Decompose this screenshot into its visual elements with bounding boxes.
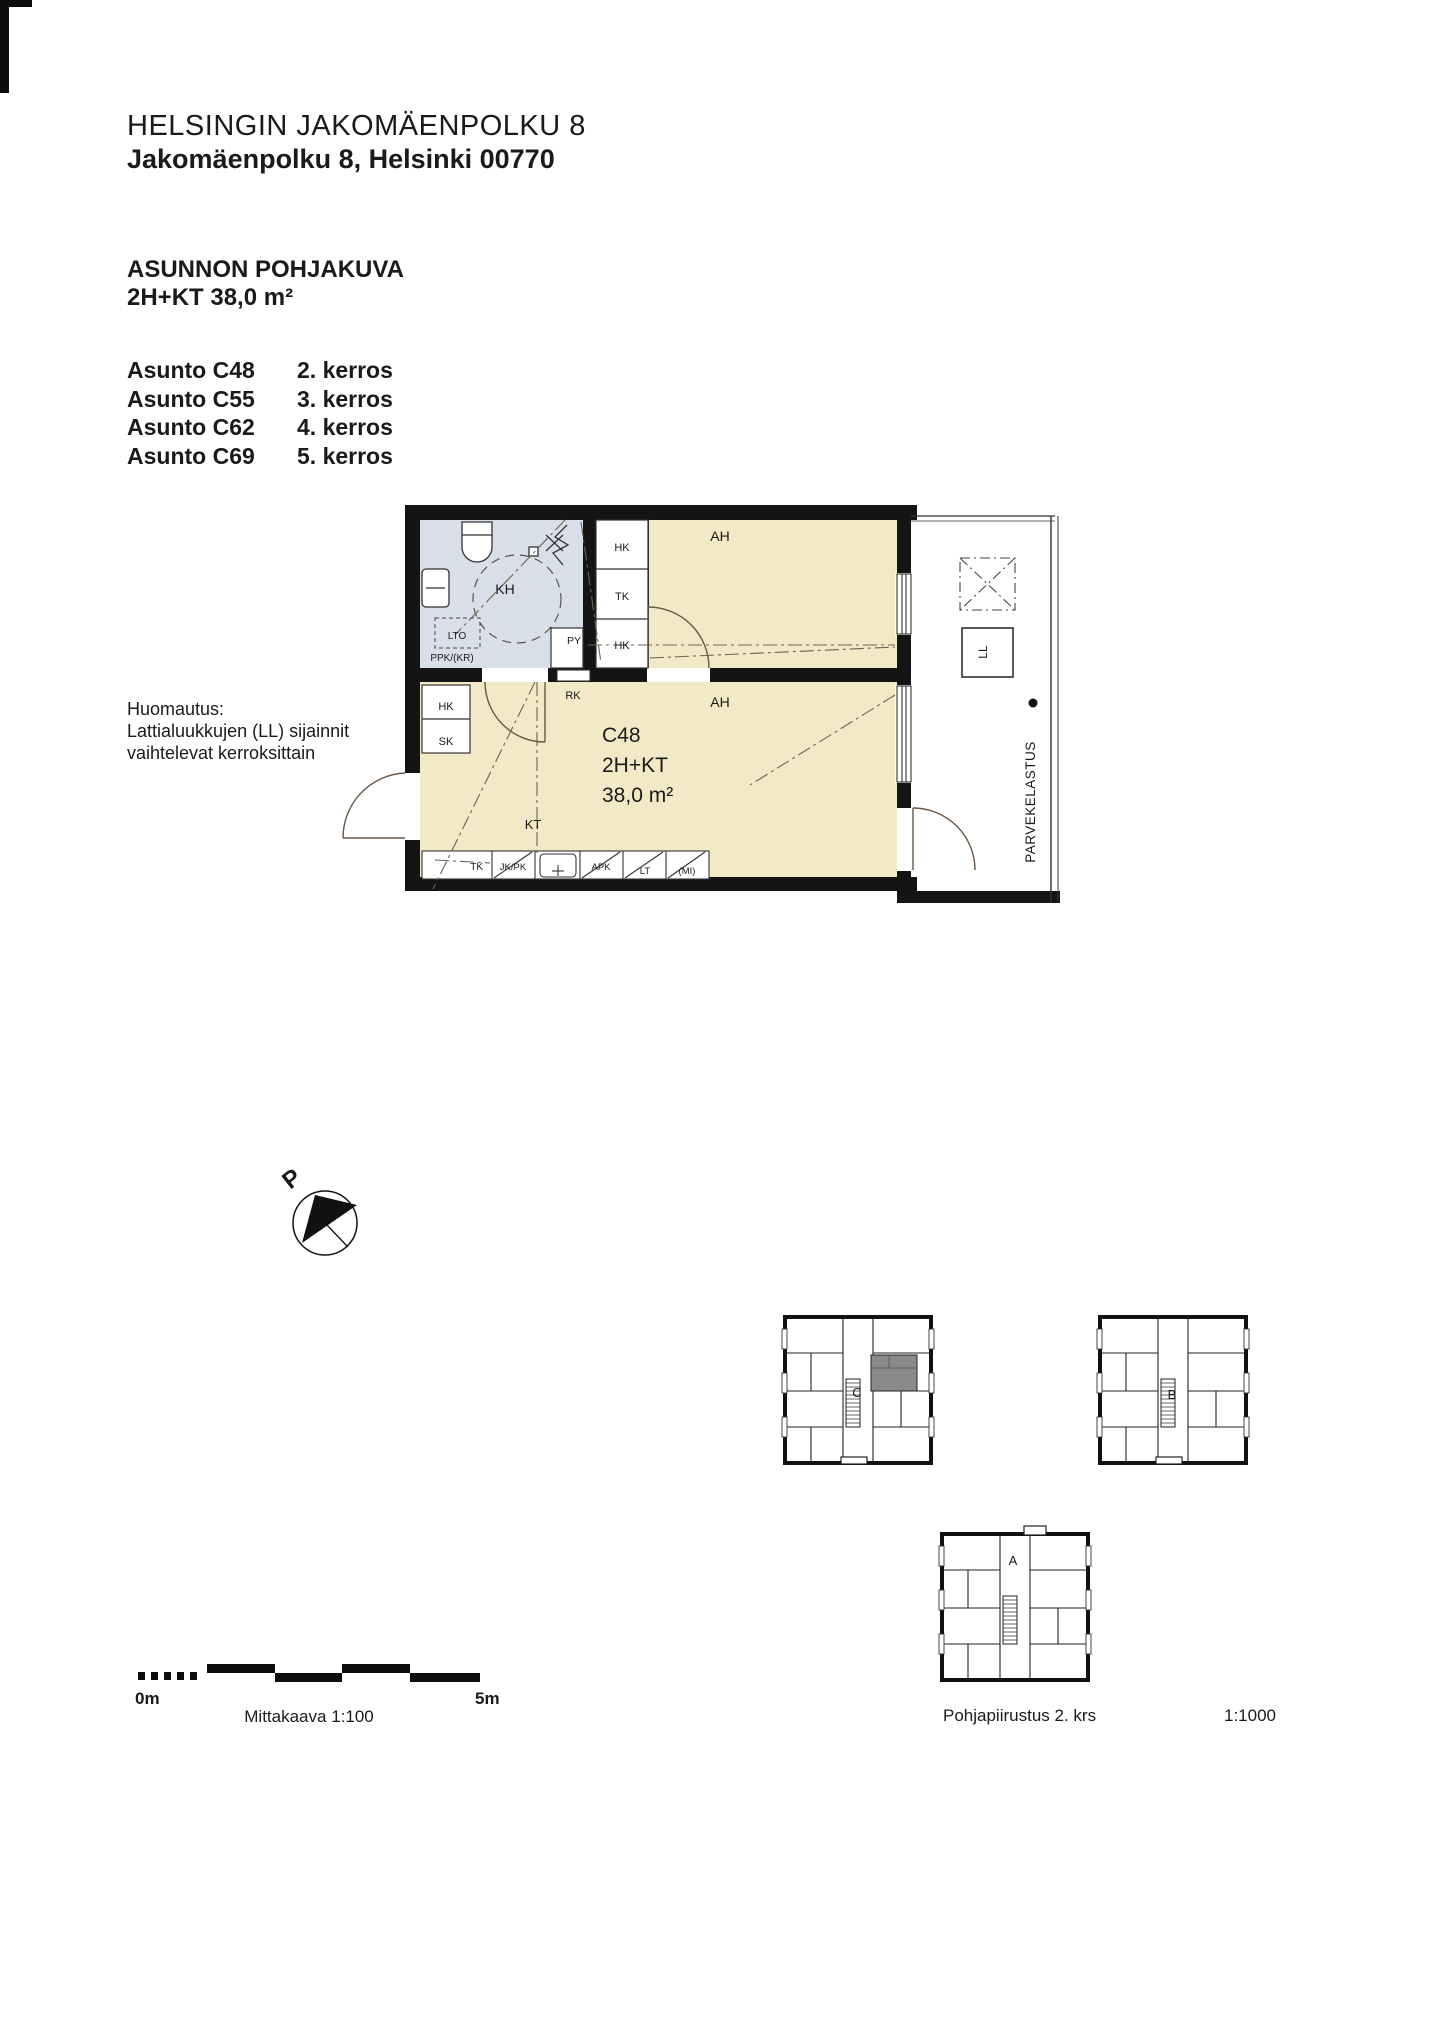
scale-bar-segments — [138, 1664, 480, 1682]
apartment-name: Asunto C48 — [127, 356, 255, 385]
label-tk-counter: TK — [470, 862, 483, 873]
key-plan-building-c: C — [781, 1313, 935, 1471]
page-title: HELSINGIN JAKOMÄENPOLKU 8 — [127, 110, 586, 143]
label-apk: APK — [591, 862, 611, 873]
apartment-floor-plan: AH KH LTO PPK/(KR) PY HK TK HK RK HK SK … — [330, 490, 1070, 920]
highlighted-apartment — [871, 1355, 917, 1391]
apartment-list-row: Asunto C62 4. kerros — [127, 413, 547, 442]
key-plan-building-a: A — [938, 1524, 1092, 1684]
stair-exit — [1156, 1457, 1182, 1464]
label-jk-pk: JK/PK — [500, 862, 527, 873]
label-lt: LT — [640, 866, 651, 877]
scan-artifact — [0, 0, 9, 93]
label-py: PY — [567, 635, 581, 647]
window — [897, 574, 911, 634]
apartment-name: Asunto C55 — [127, 385, 255, 414]
key-plan-building-b: B — [1096, 1313, 1250, 1471]
shower-valve — [529, 547, 538, 556]
label-lto: LTO — [448, 631, 467, 642]
stair-exit — [1024, 1526, 1046, 1535]
drain-dot — [1029, 699, 1038, 708]
toilet — [462, 522, 492, 562]
bedroom-floor — [648, 520, 897, 668]
building-letter: B — [1168, 1387, 1177, 1402]
floor-hatch-note: Huomautus: Lattialuukkujen (LL) sijainni… — [127, 698, 349, 764]
scan-artifact — [0, 0, 32, 7]
apartment-id: C48 — [602, 724, 641, 747]
apartment-floor: 5. kerros — [297, 442, 393, 471]
apartment-type: 2H+KT — [602, 754, 668, 777]
py-washer-box — [551, 628, 583, 668]
drawing-type-label: ASUNNON POHJAKUVA — [127, 256, 404, 284]
apartment-floor: 2. kerros — [297, 356, 393, 385]
label-mi: (MI) — [679, 866, 696, 877]
label-hk: HK — [614, 542, 630, 554]
scale-caption: Mittakaava 1:100 — [244, 1707, 373, 1726]
north-compass: P — [270, 1150, 380, 1265]
label-hk: HK — [614, 640, 630, 652]
label-sk: SK — [439, 736, 454, 748]
label-parvekelastus: PARVEKELASTUS — [1023, 741, 1038, 863]
hoisting-area-marker — [960, 558, 1015, 610]
label-tk: TK — [615, 591, 630, 603]
key-plan-caption: Pohjapiirustus 2. krs — [943, 1706, 1096, 1726]
note-line: Huomautus: — [127, 698, 349, 720]
apartment-list-row: Asunto C69 5. kerros — [127, 442, 547, 471]
living-kitchen-floor — [420, 682, 897, 877]
apartment-floor: 4. kerros — [297, 413, 393, 442]
building-letter: A — [1009, 1553, 1018, 1568]
scale-end-label: 5m — [475, 1689, 500, 1708]
label-ppk-kr: PPK/(KR) — [430, 653, 473, 664]
scale-zero-label: 0m — [135, 1689, 160, 1708]
room-label-living: AH — [710, 694, 729, 710]
rk-electrical-cabinet — [557, 670, 590, 681]
apartment-name: Asunto C62 — [127, 413, 255, 442]
window — [897, 686, 911, 782]
page-address: Jakomäenpolku 8, Helsinki 00770 — [127, 144, 555, 175]
note-line: vaihtelevat kerroksittain — [127, 742, 349, 764]
stair-exit — [841, 1457, 867, 1464]
room-label-bedroom: AH — [710, 528, 729, 544]
apartment-list-row: Asunto C55 3. kerros — [127, 385, 547, 414]
apartment-list-row: Asunto C48 2. kerros — [127, 356, 547, 385]
key-plan-scale: 1:1000 — [1224, 1706, 1276, 1726]
apartment-name: Asunto C69 — [127, 442, 255, 471]
kitchen-counter — [422, 851, 709, 879]
scale-bar: 0m 5m Mittakaava 1:100 — [130, 1655, 510, 1730]
label-ll: LL — [976, 645, 990, 659]
drawing-sheet: HELSINGIN JAKOMÄENPOLKU 8 Jakomäenpolku … — [0, 0, 1440, 2036]
apartment-type-label: 2H+KT 38,0 m² — [127, 284, 293, 312]
note-line: Lattialuukkujen (LL) sijainnit — [127, 720, 349, 742]
apartment-area: 38,0 m² — [602, 784, 673, 807]
apartment-list: Asunto C48 2. kerros Asunto C55 3. kerro… — [127, 356, 547, 470]
room-label-bathroom: KH — [495, 581, 514, 597]
label-rk: RK — [565, 690, 581, 702]
room-label-kitchen: KT — [525, 817, 542, 832]
north-label: P — [277, 1164, 306, 1195]
apartment-floor: 3. kerros — [297, 385, 393, 414]
building-letter: C — [852, 1385, 861, 1400]
label-hk: HK — [438, 701, 454, 713]
